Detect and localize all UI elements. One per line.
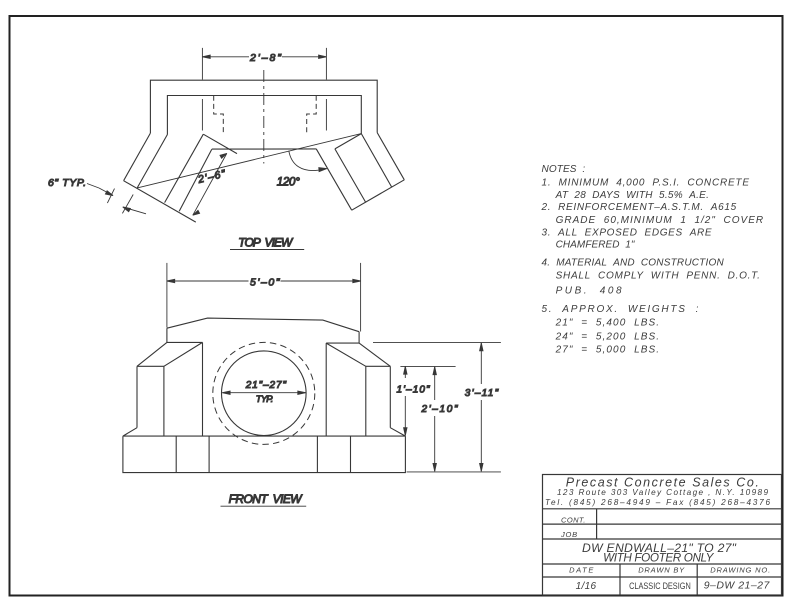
svg-text:9–DW 21–27: 9–DW 21–27 <box>704 579 771 591</box>
svg-text:21" = 5,400 LBS.: 21" = 5,400 LBS. <box>555 317 659 328</box>
svg-text:3'–11": 3'–11" <box>465 388 499 399</box>
svg-text:5. APPROX. WEIGHTS :: 5. APPROX. WEIGHTS : <box>542 304 699 315</box>
svg-text:PUB. 408: PUB. 408 <box>556 285 622 296</box>
svg-text:2. REINFORCEMENT–A.S.T.M. A6: 2. REINFORCEMENT–A.S.T.M. A615 <box>541 202 737 213</box>
svg-text:27" = 5,000 LBS.: 27" = 5,000 LBS. <box>555 344 659 355</box>
svg-text:1'–10": 1'–10" <box>397 384 430 395</box>
svg-text:2'–8": 2'–8" <box>249 52 282 64</box>
svg-text:TYP.: TYP. <box>256 394 274 405</box>
svg-text:AT 28 DAYS WITH 5.5% A.E.: AT 28 DAYS WITH 5.5% A.E. <box>555 190 709 201</box>
svg-text:SHALL COMPLY WITH PENN. D.: SHALL COMPLY WITH PENN. D.O.T. <box>556 270 760 281</box>
svg-text:DRAWING NO.: DRAWING NO. <box>710 566 770 575</box>
svg-text:DATE: DATE <box>569 566 594 575</box>
svg-text:6" TYP.: 6" TYP. <box>48 177 86 189</box>
svg-text:120°: 120° <box>277 177 300 189</box>
svg-text:CONT.: CONT. <box>561 516 585 525</box>
svg-text:JOB: JOB <box>560 530 577 539</box>
svg-text:FRONT VIEW: FRONT VIEW <box>229 492 304 506</box>
svg-text:CLASSIC DESIGN: CLASSIC DESIGN <box>629 581 691 591</box>
svg-text:5'–0": 5'–0" <box>250 276 281 288</box>
svg-text:Tel. (845) 268–4949 – Fax (845: Tel. (845) 268–4949 – Fax (845) 268–4376 <box>545 498 770 507</box>
svg-text:DRAWN BY: DRAWN BY <box>638 566 685 575</box>
svg-text:4. MATERIAL AND CONSTRUCTIO: 4. MATERIAL AND CONSTRUCTION <box>542 257 725 268</box>
svg-text:1. MINIMUM 4,000 P.S.I. CO: 1. MINIMUM 4,000 P.S.I. CONCRETE <box>542 177 750 188</box>
svg-text:TOP VIEW: TOP VIEW <box>238 236 294 250</box>
svg-text:21"–27": 21"–27" <box>245 380 287 391</box>
svg-text:NOTES :: NOTES : <box>542 164 586 175</box>
svg-text:123 Route 303 Valley Cottage ,: 123 Route 303 Valley Cottage , N.Y. 1098… <box>557 488 768 497</box>
svg-text:WITH FOOTER ONLY: WITH FOOTER ONLY <box>603 552 715 565</box>
svg-text:24" = 5,200 LBS.: 24" = 5,200 LBS. <box>555 331 659 342</box>
svg-text:GRADE 60,MINIMUM 1 1/2" CO: GRADE 60,MINIMUM 1 1/2" COVER <box>556 215 764 226</box>
svg-text:CHAMFERED 1": CHAMFERED 1" <box>556 239 635 250</box>
svg-text:3. ALL EXPOSED EDGES ARE: 3. ALL EXPOSED EDGES ARE <box>542 227 712 238</box>
svg-text:1/16: 1/16 <box>576 581 597 592</box>
svg-text:2'–10": 2'–10" <box>421 404 458 415</box>
